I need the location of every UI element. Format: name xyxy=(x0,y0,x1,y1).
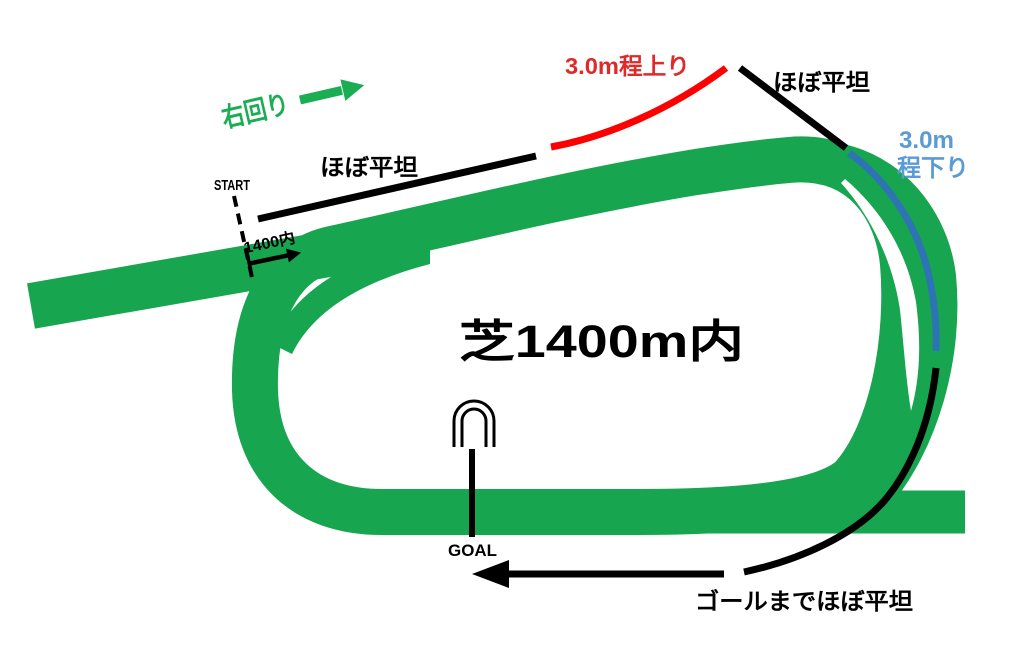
downhill-label-line1: 3.0m xyxy=(899,127,954,154)
home-straight-arrowhead xyxy=(472,560,509,588)
crest-flat-label: ほぼ平坦 xyxy=(773,69,870,95)
direction-arrow-shaft xyxy=(300,90,342,100)
backstretch-flat-label: ほぼ平坦 xyxy=(320,154,418,180)
direction-label: 右回り xyxy=(219,89,292,134)
direction-group: 右回り xyxy=(219,72,368,134)
direction-arrowhead xyxy=(340,74,366,100)
home-stretch-flat-label: ゴールまでほぼ平坦 xyxy=(695,588,913,614)
course-map-svg: START 1400内 右回り GOAL ほぼ平坦 3.0m程上り ほぼ平坦 3… xyxy=(0,0,1024,652)
uphill-label: 3.0m程上り xyxy=(565,53,690,79)
start-label: START xyxy=(214,178,250,194)
downhill-label-line2: 程下り xyxy=(897,155,969,182)
course-diagram: START 1400内 右回り GOAL ほぼ平坦 3.0m程上り ほぼ平坦 3… xyxy=(0,0,1024,652)
uphill-curve xyxy=(551,68,726,147)
goal-label: GOAL xyxy=(448,541,497,560)
course-title: 芝1400m内 xyxy=(459,316,744,367)
